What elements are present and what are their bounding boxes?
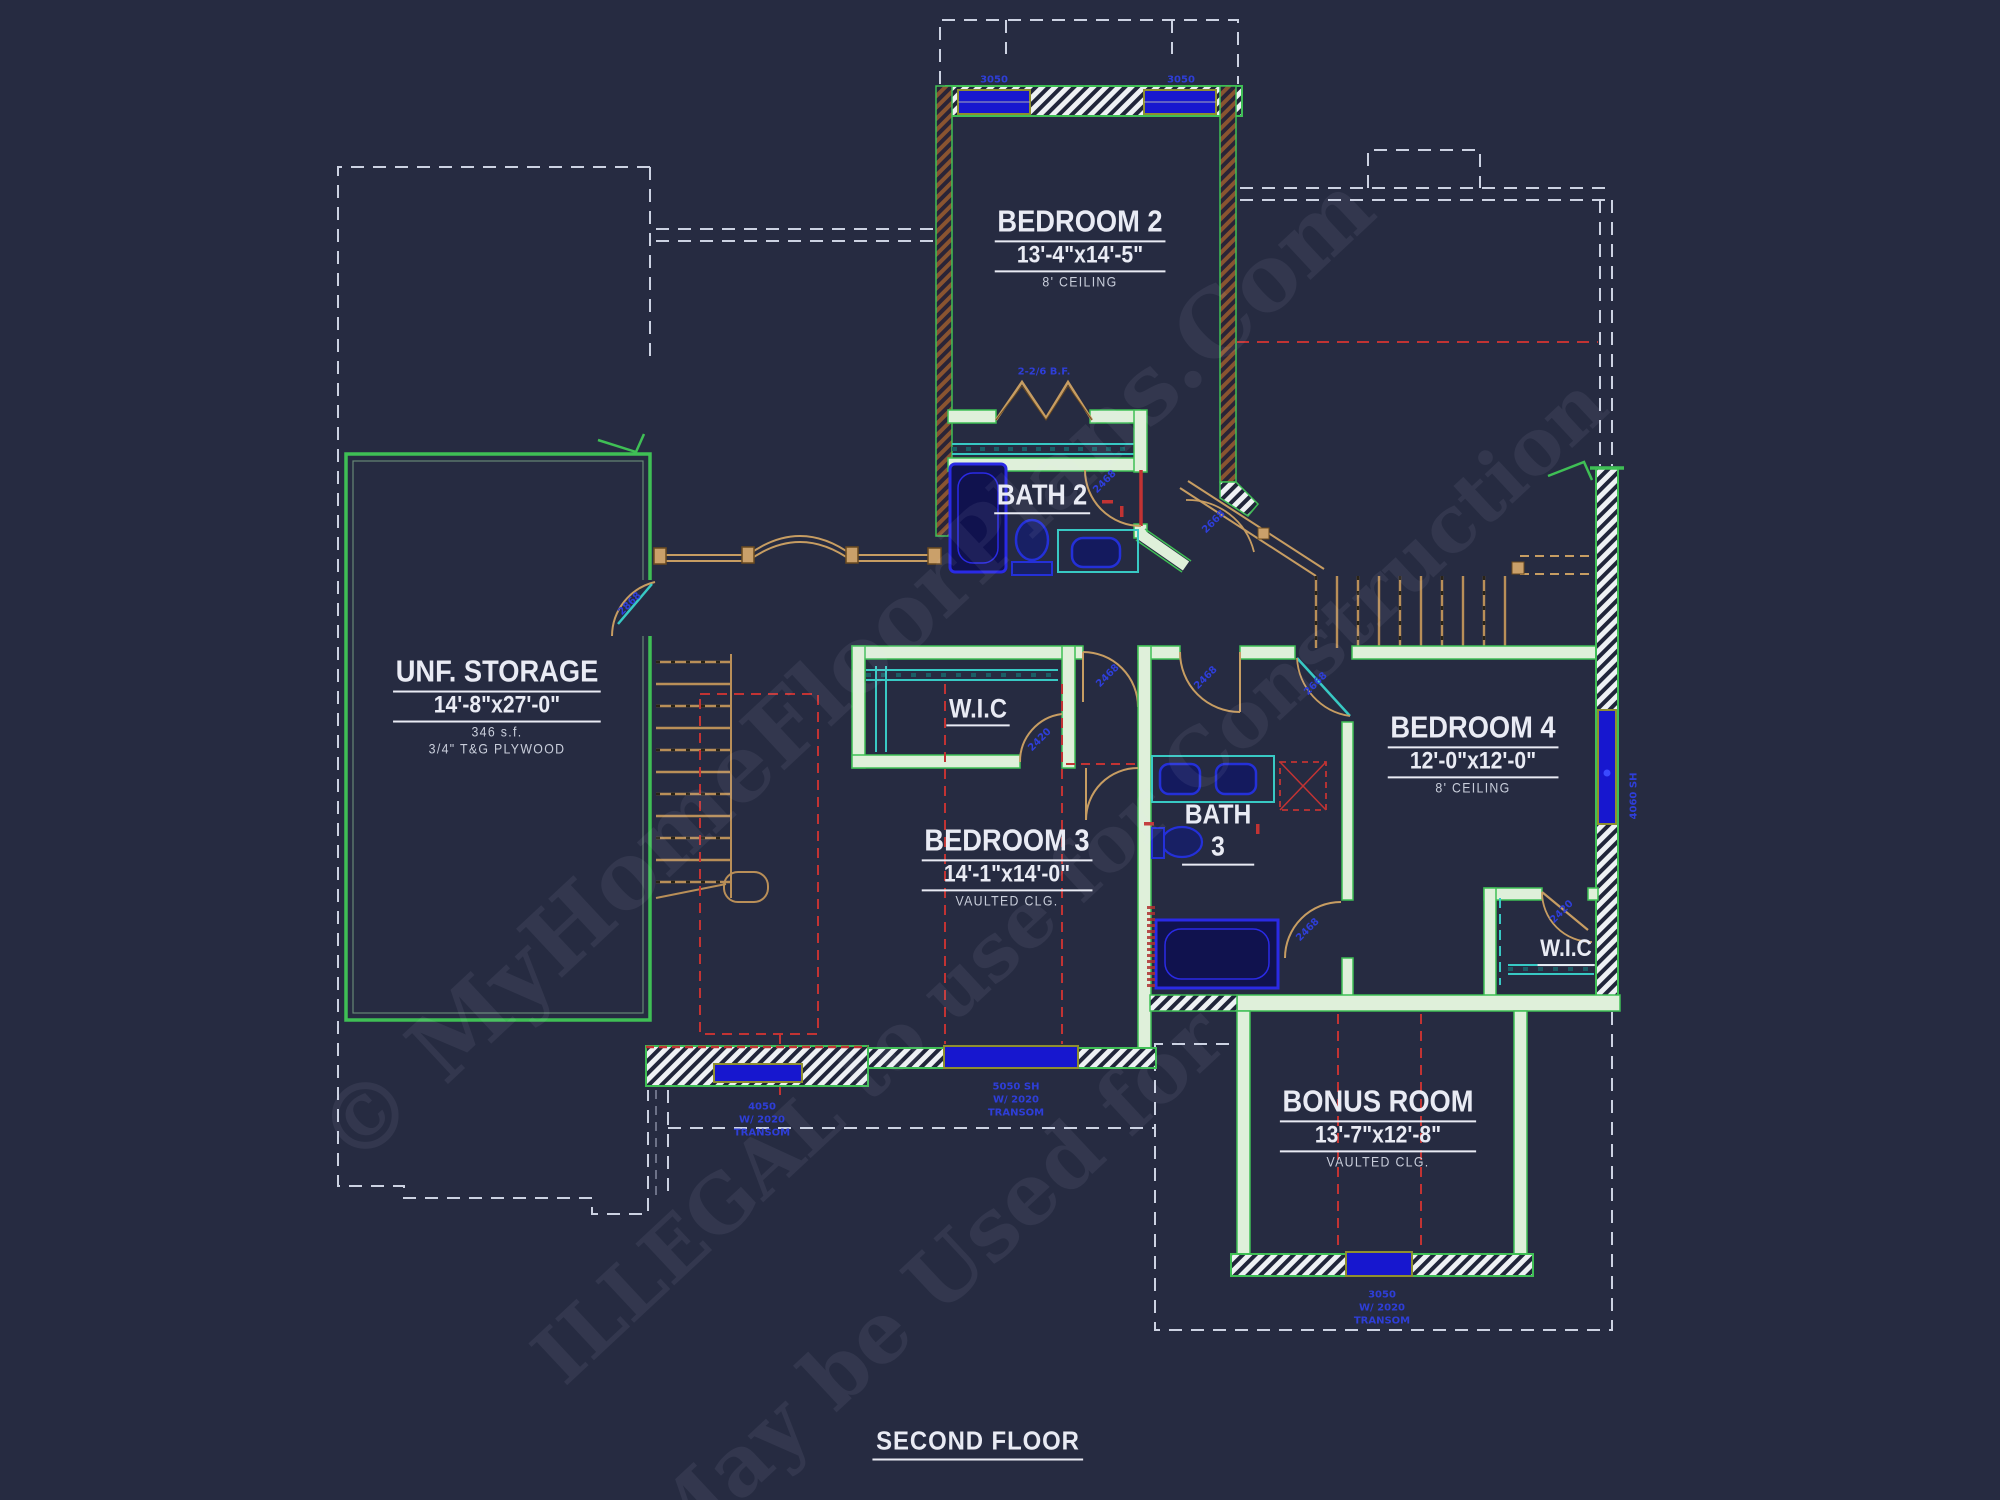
room-label-bonus: BONUS ROOM 13'-7"x12'-8" VAULTED CLG. — [1280, 1084, 1476, 1169]
room-label-bedroom2: BEDROOM 2 13'-4"x14'-5" 8' CEILING — [995, 204, 1166, 289]
window-label-group: 3050 W/ 2020 TRANSOM — [1354, 1289, 1410, 1328]
sink — [1072, 538, 1120, 567]
window-label-group: 5050 SH W/ 2020 TRANSOM — [988, 1081, 1044, 1120]
window-label: 4060 SH — [1628, 773, 1641, 820]
floor-plan-canvas: © MyHomeFloorPlans.Com ILLEGAL to use fo… — [0, 0, 2000, 1500]
room-label-unf-storage: UNF. STORAGE 14'-8"x27'-0" 346 s.f. 3/4"… — [393, 655, 601, 758]
window — [944, 1046, 1078, 1068]
closet-door-label: 2-2/6 B.F. — [1018, 366, 1071, 379]
room-label-wic-right: W.I.C — [1538, 936, 1595, 966]
room-label-bath2: BATH 2 — [994, 479, 1090, 514]
window-label: 3050 — [980, 74, 1008, 87]
window-label: 3050 — [1167, 74, 1195, 87]
room-label-wic-left: W.I.C — [946, 693, 1009, 726]
room-label-bedroom3: BEDROOM 3 14'-1"x14'-0" VAULTED CLG. — [922, 823, 1093, 908]
window — [1346, 1252, 1412, 1276]
room-label-bedroom4: BEDROOM 4 12'-0"x12'-0" 8' CEILING — [1388, 710, 1559, 795]
page-title: SECOND FLOOR — [872, 1426, 1083, 1461]
window — [1598, 710, 1616, 824]
window-label-group: 4050 W/ 2020 TRANSOM — [734, 1101, 790, 1140]
room-label-bath3: BATH 3 — [1182, 799, 1254, 866]
landing-walls — [1150, 995, 1620, 1011]
